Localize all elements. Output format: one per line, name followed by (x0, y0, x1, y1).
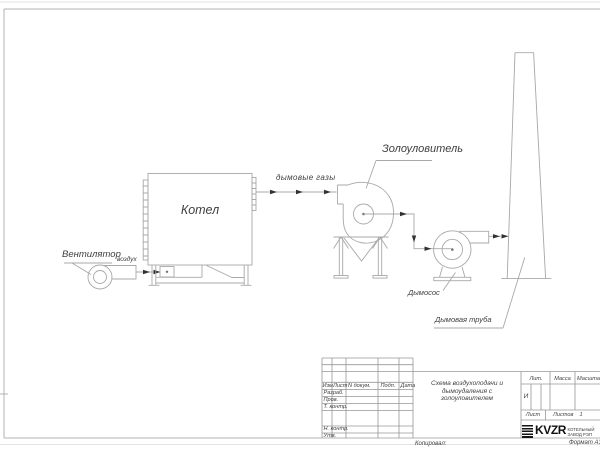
smoke-exhauster-drawing (434, 231, 489, 291)
titleblock-row-prov: Пров. (324, 398, 339, 404)
drawing-title-line1: Схема воздухоподачи и (413, 380, 521, 388)
titleblock-row-razrab: Разраб. (324, 391, 344, 397)
copied-label: Копировал: (415, 441, 447, 447)
chimney-drawing (434, 53, 551, 328)
sheet-edges (0, 2, 600, 445)
flue-gas-line (256, 190, 337, 194)
flue-gases-label: дымовые газы (276, 174, 336, 182)
titleblock-sheets-value: 1 (576, 413, 586, 419)
titleblock-mass-label: Масса (550, 377, 575, 383)
kvzr-logo-text: KVZR (535, 424, 566, 436)
fan-drawing (64, 263, 136, 289)
boiler-drawing (143, 174, 256, 286)
titleblock-scale-label: Масштаб (577, 377, 600, 383)
ash-collector-drawing (334, 161, 433, 279)
titleblock-sheets-label: Листов (553, 413, 573, 419)
drawing-sheet: Вентилятор воздух Котел дымовые газы Зол… (0, 0, 600, 450)
exhauster-to-chimney-line (489, 234, 509, 238)
titleblock-sheet-label: Лист (521, 413, 545, 419)
titleblock-row-nkontr: Н. контр. (324, 427, 349, 433)
ash-to-exhauster-line (364, 212, 452, 251)
boiler-label: Котел (172, 204, 228, 217)
company-subtitle: КОТЕЛЬНЫЙ ЗАВОД РЭП (568, 427, 595, 437)
company-subtitle-line2: ЗАВОД РЭП (568, 432, 595, 437)
smoke-exhauster-label: Дымосос (408, 289, 440, 297)
titleblock-lit-label: Лит. (521, 377, 551, 383)
titleblock-col-podp: Подп. (381, 384, 396, 390)
air-flow-line (136, 270, 161, 274)
drawing-frame (0, 9, 600, 438)
titleblock-row-utv: Утв. (324, 434, 337, 440)
air-label: воздух (117, 257, 137, 264)
titleblock-row-tkontr: Т. контр. (324, 405, 348, 411)
titleblock-col-ndoc: N докум. (348, 384, 371, 390)
drawing-title-line2: дымоудаления с (413, 388, 521, 396)
kvzr-logo-icon (522, 425, 533, 438)
fan-label: Вентилятор (62, 250, 121, 260)
format-label: Формат А3 (569, 440, 600, 446)
titleblock-col-list: Лист (333, 384, 347, 390)
chimney-label: Дымовая труба (435, 316, 492, 324)
titleblock-lit-value: И (521, 394, 531, 401)
drawing-title: Схема воздухоподачи и дымоудаления с зол… (413, 380, 521, 403)
ash-collector-label: Золоуловитель (382, 144, 463, 156)
drawing-title-line3: золоуловителем (413, 395, 521, 403)
company-subtitle-line1: КОТЕЛЬНЫЙ (568, 427, 595, 432)
